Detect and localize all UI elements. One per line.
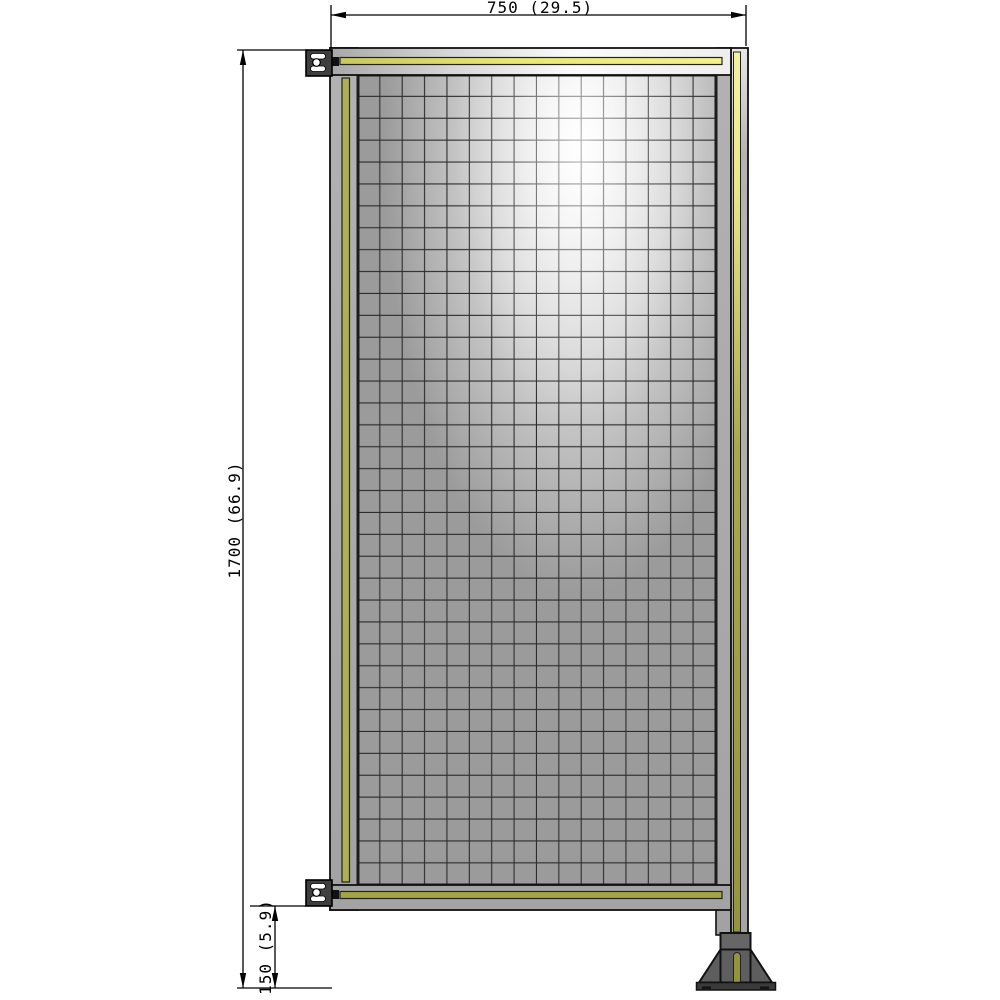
foot-collar [721,933,751,951]
floor-foot [697,933,776,990]
height-dimension-label: 1700 (66.9) [225,462,244,579]
bottom-rail-yellow-stripe [340,892,722,899]
mesh-highlight [358,75,716,885]
floor-offset-dimension-label: 150 (5.9) [256,899,275,995]
bracket-hole [313,59,321,67]
width-arrow-right [731,12,746,18]
foot-yellow-stripe [734,953,741,983]
right-frame-column [716,48,731,935]
foot-base-notch [760,987,769,990]
left-column-yellow-stripe [342,78,350,882]
foot-base-notch [702,987,711,990]
bracket-slot [311,66,326,72]
width-dimension: 750 (29.5) [331,0,746,48]
top-rail-yellow-stripe [340,58,722,65]
height-dimension: 1700 (66.9) [225,50,307,988]
height-arrow-bottom [240,973,246,988]
floor-offset-dimension: 150 (5.9) [237,899,332,995]
bracket-connector-top [332,57,339,66]
wire-mesh [358,75,716,885]
fence-panel [306,48,776,990]
height-arrow-top [240,50,246,65]
width-dimension-label: 750 (29.5) [487,0,593,17]
bracket-slot [311,54,326,60]
bracket-connector-bottom [332,890,339,899]
drawing-canvas: 750 (29.5) 1700 (66.9) 150 (5.9) [0,0,1000,1000]
fence-panel-drawing: 750 (29.5) 1700 (66.9) 150 (5.9) [0,0,1000,1000]
post-yellow-stripe [734,52,741,932]
bracket-slot [311,884,326,890]
bracket-slot [311,896,326,902]
width-arrow-left [331,12,346,18]
bracket-hole [313,889,321,897]
